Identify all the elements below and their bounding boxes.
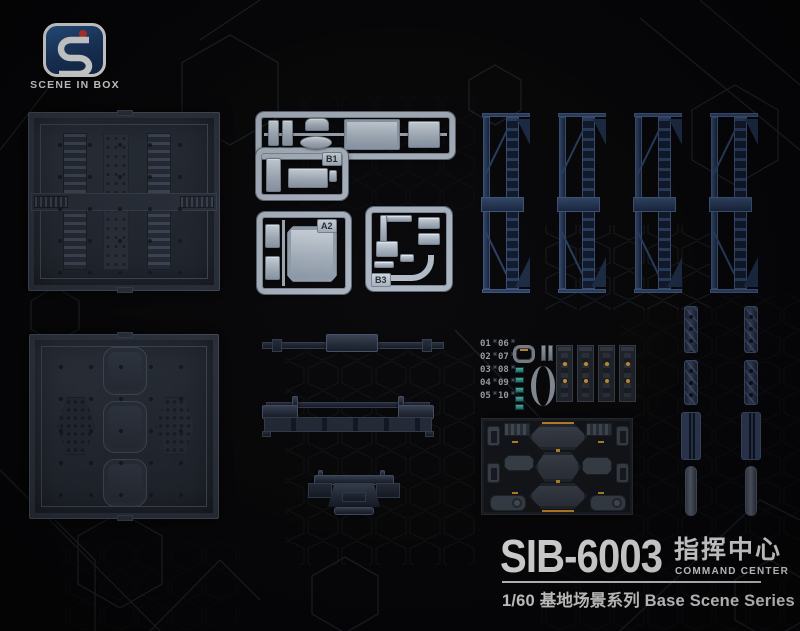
kit-part <box>408 121 440 148</box>
floor-pod <box>616 463 629 483</box>
floor-slat <box>504 423 530 436</box>
etched-rect-part <box>548 345 553 361</box>
bracket-body-inset <box>342 492 366 502</box>
double-rail-segment <box>741 412 761 460</box>
marking-number: 05 <box>480 391 497 401</box>
kit-part <box>344 119 400 150</box>
kit-part <box>282 120 293 146</box>
brand-logo <box>43 23 106 77</box>
kit-part <box>418 217 440 229</box>
greeble-strip <box>598 345 615 402</box>
amber-accent <box>512 492 518 494</box>
floor-console <box>582 457 612 475</box>
double-rail-segment <box>681 412 701 460</box>
floor-hex-platform <box>535 452 581 482</box>
panel-tab <box>117 287 133 293</box>
beam-tab <box>272 339 282 352</box>
runner-tag-b3: B3 <box>371 273 391 287</box>
beam-tab <box>422 339 432 352</box>
greeble-strip <box>556 345 573 402</box>
runner-tag-a2: A2 <box>317 219 337 233</box>
floor-wide-pod <box>490 495 526 511</box>
antenna-bar-segment <box>684 360 698 405</box>
truss-pillar-1 <box>480 113 532 293</box>
floor-slat <box>586 423 612 436</box>
etched-rect-part <box>541 345 546 361</box>
panel-rivets <box>46 351 202 502</box>
amber-accent <box>556 480 560 483</box>
truss-pillar-2 <box>556 113 608 293</box>
wall-section-part <box>262 394 434 438</box>
kit-part <box>305 118 329 131</box>
marking-number: 01 <box>480 339 497 349</box>
detail-panel-a <box>28 112 220 291</box>
marking-number: 03 <box>480 365 497 375</box>
greeble-strip <box>619 345 636 402</box>
truss-pillar-4 <box>708 113 760 293</box>
divider-line <box>502 581 761 583</box>
wall-foot <box>262 431 271 437</box>
marking-sheet-numbers: 01 06 02 07 03 08 04 09 05 10 <box>480 339 515 401</box>
teal-chip <box>515 396 524 402</box>
amber-accent <box>542 422 574 424</box>
crossbeam-part <box>262 334 444 358</box>
panel-tab <box>117 110 133 116</box>
kit-part <box>268 120 279 146</box>
kit-part <box>329 170 337 182</box>
wall-foot <box>425 431 434 437</box>
amber-accent <box>542 510 574 512</box>
round-bar-segment <box>685 466 697 516</box>
floor-hex-platform <box>529 424 587 450</box>
teal-chip <box>515 367 524 373</box>
marking-number: 09 <box>498 378 515 388</box>
kit-part-hatch <box>287 226 337 282</box>
wall-panel-row <box>264 417 432 432</box>
brand-wordmark: SCENE IN BOX <box>28 79 122 91</box>
floor-pod <box>487 463 500 483</box>
runner-a2: A2 <box>257 212 353 296</box>
detail-panel-b <box>29 334 219 519</box>
floor-platform <box>504 455 534 471</box>
kit-part <box>300 136 332 149</box>
kit-part <box>374 261 394 268</box>
runner-tag-b1: B1 <box>322 152 342 166</box>
truss-pillar-3 <box>632 113 684 293</box>
beam-center-block <box>326 334 378 352</box>
panel-tab <box>117 515 133 521</box>
floor-pod <box>487 426 500 446</box>
sib-monogram-icon <box>46 26 103 74</box>
runner-b1: B1 <box>256 112 457 202</box>
marking-number: 04 <box>480 378 497 388</box>
kit-part <box>288 168 328 188</box>
product-title-en: COMMAND CENTER <box>675 566 789 577</box>
floor-pod <box>616 426 629 446</box>
kit-part <box>265 224 280 248</box>
antenna-bar-segment <box>744 306 758 353</box>
greeble-strip <box>577 345 594 402</box>
floor-wide-pod <box>590 495 626 511</box>
box-art-scene: SCENE IN BOX B1 <box>0 0 800 631</box>
amber-accent <box>598 441 604 443</box>
kit-part <box>418 233 440 245</box>
amber-accent <box>512 441 518 443</box>
antenna-bar-segment <box>744 360 758 405</box>
floor-hex-platform <box>529 483 587 509</box>
bracket-base <box>334 507 374 515</box>
panel-rivets <box>45 129 203 274</box>
marking-number: 02 <box>480 352 497 362</box>
console-bracket-part <box>308 470 402 518</box>
kit-part <box>265 256 280 280</box>
amber-accent <box>598 492 604 494</box>
teal-chip <box>515 404 524 410</box>
marking-number: 06 <box>498 339 515 349</box>
bracket-wing <box>376 483 400 498</box>
antenna-bar-segment <box>684 306 698 353</box>
teal-chip <box>515 387 524 393</box>
etched-frame-part <box>513 345 535 363</box>
series-line: 1/60 基地场景系列 Base Scene Series <box>502 587 795 611</box>
product-code: SIB-6003 <box>500 533 662 579</box>
teal-chip <box>515 377 524 383</box>
kit-part <box>400 254 414 262</box>
kit-part <box>266 158 281 192</box>
runner-bar <box>282 220 285 286</box>
floor-panel <box>481 418 633 515</box>
panel-tab <box>117 332 133 338</box>
runner-b3: B3 <box>366 207 454 293</box>
kit-part-pipe <box>380 215 387 243</box>
marking-number: 10 <box>498 391 515 401</box>
product-title-cn: 指挥中心 <box>674 537 782 565</box>
marking-number: 08 <box>498 365 515 375</box>
bracket-wing <box>308 483 332 498</box>
round-bar-segment <box>745 466 757 516</box>
amber-accent <box>556 449 560 452</box>
